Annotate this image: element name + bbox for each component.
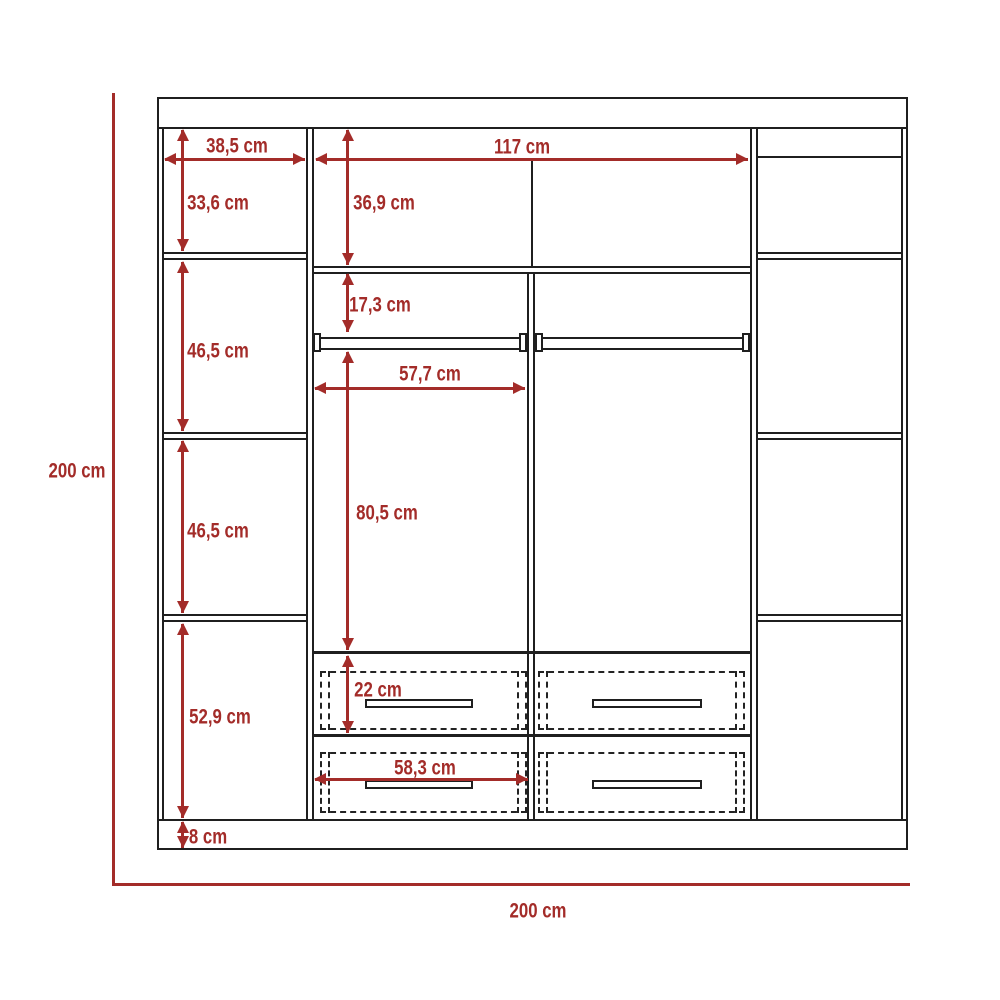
hanging-rod-right [543, 348, 742, 350]
dim-arrowhead [177, 806, 189, 818]
width-dimension-line [112, 883, 910, 886]
left-shelf-line [164, 614, 306, 616]
drawer-side-dashed [328, 671, 330, 730]
hanging-rod-left [321, 337, 520, 339]
drawer-side-dashed [546, 752, 548, 813]
dim-label-center-top-cell: 36,9 cm [353, 193, 415, 214]
drawer-handle [592, 780, 702, 789]
dim-arrowhead [177, 129, 189, 141]
left-shelf-line [164, 620, 306, 622]
dim-label-left-cell2: 46,5 cm [187, 341, 249, 362]
dim-arrow-left-cell4 [181, 624, 184, 818]
dim-arrowhead [314, 382, 326, 394]
dim-arrowhead [342, 253, 354, 265]
rod-bracket [519, 333, 527, 352]
rod-bracket [535, 333, 543, 352]
dim-arrowhead [342, 655, 354, 667]
dim-label-left-shelf-width: 38,5 cm [206, 136, 268, 157]
drawer-section-top-line [314, 651, 750, 654]
center-shelf-line [314, 272, 750, 274]
dim-label-left-top-cell: 33,6 cm [187, 193, 249, 214]
right-shelf-line [758, 432, 901, 434]
dim-arrowhead [342, 351, 354, 363]
rod-bracket [742, 333, 750, 352]
dim-arrowhead [342, 129, 354, 141]
dim-arrowhead [736, 153, 748, 165]
left-shelf-line [164, 432, 306, 434]
dim-arrowhead [164, 153, 176, 165]
dim-arrowhead [177, 261, 189, 273]
dim-label-drawer-height: 22 cm [354, 680, 402, 701]
center-divider-top-line [531, 158, 533, 268]
dim-arrowhead [177, 601, 189, 613]
dim-arrowhead [513, 382, 525, 394]
dim-arrowhead [177, 239, 189, 251]
dim-arrowhead [177, 440, 189, 452]
rod-bracket [313, 333, 321, 352]
dim-arrow-left-shelf-width [165, 158, 305, 161]
drawer-side-dashed [735, 752, 737, 813]
drawer-side-dashed [735, 671, 737, 730]
hanging-rod-left [321, 348, 520, 350]
dim-arrowhead [293, 153, 305, 165]
dim-arrowhead [315, 153, 327, 165]
dim-arrowhead [177, 623, 189, 635]
right-divider-line-1 [750, 129, 752, 819]
dim-arrowhead [342, 273, 354, 285]
drawer-side-dashed [546, 671, 548, 730]
dim-arrowhead [314, 773, 326, 785]
drawer-handle [592, 699, 702, 708]
dim-arrow-left-cell3 [181, 441, 184, 613]
drawer-side-dashed [517, 671, 519, 730]
dim-arrow-center-top-cell [346, 130, 349, 265]
dim-arrowhead [342, 638, 354, 650]
dim-arrow-left-top-cell [181, 130, 184, 251]
wardrobe-dimension-diagram: 200 cm 200 cm 38,5 cm 117 cm 33,6 cm 36,… [0, 0, 1000, 1000]
right-divider-line-2 [756, 129, 758, 819]
dim-label-overall-width: 200 cm [510, 901, 567, 922]
dim-label-base: 8 cm [189, 827, 227, 848]
right-shelf-line [758, 614, 901, 616]
right-shelf-line [758, 258, 901, 260]
drawer-section-mid-line [314, 734, 750, 737]
right-shelf-line [758, 156, 901, 158]
top-panel-line [159, 127, 906, 129]
drawer-handle [365, 780, 473, 789]
dim-arrowhead [342, 721, 354, 733]
left-divider-line-2 [312, 129, 314, 819]
right-shelf-line [758, 252, 901, 254]
dim-label-center-width: 117 cm [494, 137, 550, 158]
left-shelf-line [164, 258, 306, 260]
dim-arrowhead [177, 419, 189, 431]
left-shelf-line [164, 252, 306, 254]
right-side-inner-line [901, 129, 903, 819]
left-side-inner-line [162, 129, 164, 819]
dim-arrowhead [342, 320, 354, 332]
hanging-rod-right [543, 337, 742, 339]
right-shelf-line [758, 438, 901, 440]
dim-arrowhead [516, 773, 528, 785]
dim-label-left-cell4: 52,9 cm [189, 707, 251, 728]
dim-arrowhead [177, 836, 189, 848]
center-shelf-line [314, 266, 750, 268]
right-shelf-line [758, 620, 901, 622]
dim-label-rod-drop: 17,3 cm [349, 295, 411, 316]
height-dimension-line [112, 93, 115, 884]
dim-arrowhead [177, 821, 189, 833]
drawer-side-dashed [328, 752, 330, 813]
dim-label-hanging-width: 57,7 cm [399, 364, 461, 385]
dim-arrow-hanging-height [346, 352, 349, 650]
plinth-line [159, 819, 906, 821]
dim-arrow-left-cell2 [181, 262, 184, 431]
left-divider-line-1 [306, 129, 308, 819]
dim-label-left-cell3: 46,5 cm [187, 521, 249, 542]
dim-label-hanging-height: 80,5 cm [356, 503, 418, 524]
dim-label-drawer-width: 58,3 cm [394, 758, 456, 779]
dim-label-overall-height: 200 cm [49, 461, 106, 482]
